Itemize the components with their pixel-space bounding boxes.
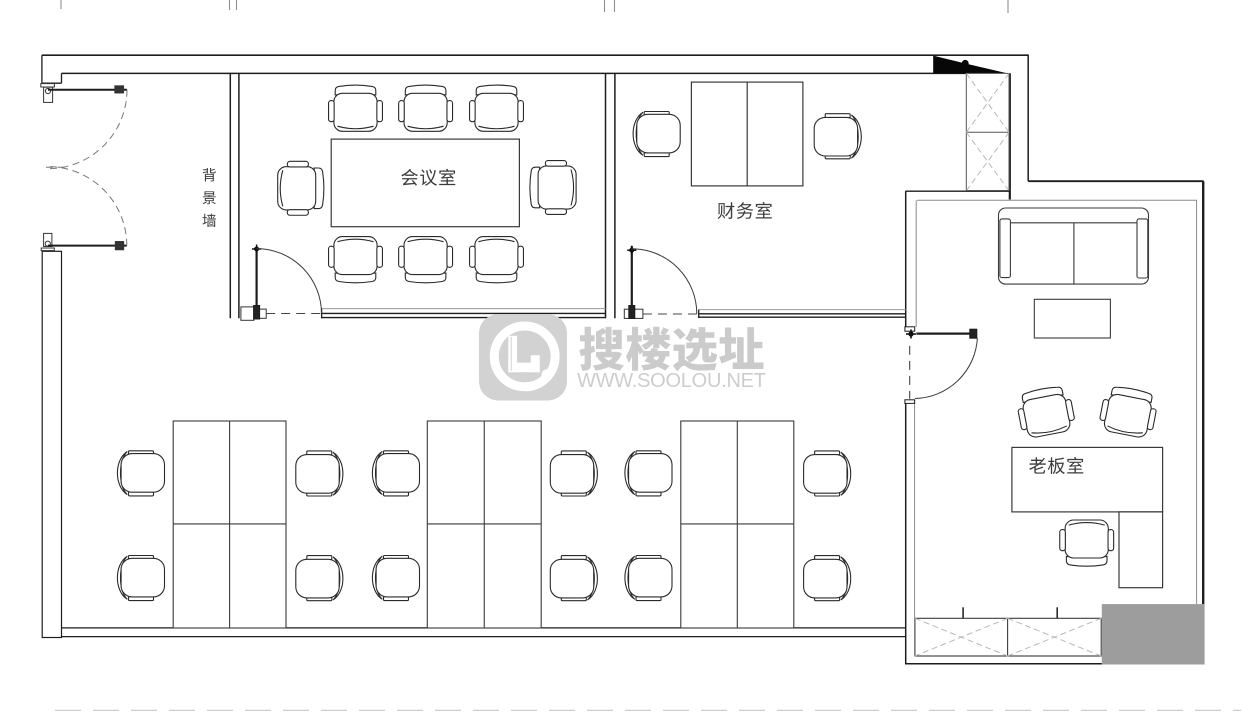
svg-text:WWW.SOOLOU.NET: WWW.SOOLOU.NET bbox=[577, 370, 766, 392]
